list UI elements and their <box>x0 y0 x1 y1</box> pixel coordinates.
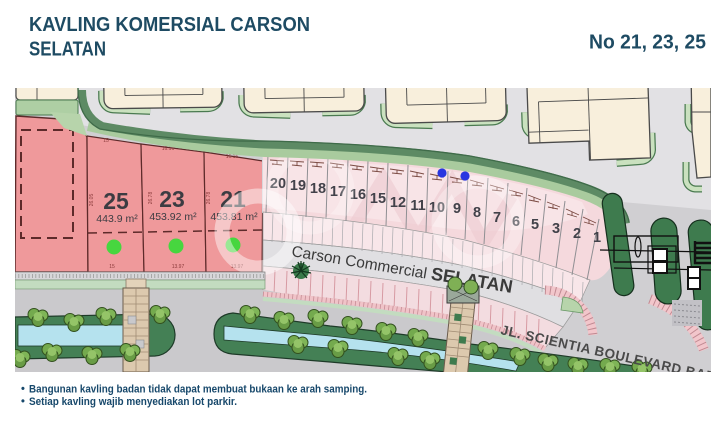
svg-text:453.92 m²: 453.92 m² <box>149 211 197 223</box>
svg-text:Bangunan kavling badan tidak d: Bangunan kavling badan tidak dapat membu… <box>29 384 367 396</box>
svg-text:15: 15 <box>109 264 115 270</box>
svg-text:Setiap kavling wajib menyediak: Setiap kavling wajib menyediakan lot par… <box>29 396 237 408</box>
svg-text:8: 8 <box>473 205 481 221</box>
svg-text:5: 5 <box>531 217 539 233</box>
svg-text:13.97: 13.97 <box>172 264 185 270</box>
svg-text:•: • <box>21 396 25 408</box>
svg-text:SELATAN: SELATAN <box>29 38 106 61</box>
svg-text:1: 1 <box>593 230 601 246</box>
svg-text:25: 25 <box>103 188 129 214</box>
svg-text:3: 3 <box>552 221 560 237</box>
svg-text:443.9 m²: 443.9 m² <box>96 213 138 225</box>
svg-text:KAVLING KOMERSIAL CARSON: KAVLING KOMERSIAL CARSON <box>29 13 310 36</box>
svg-text:15: 15 <box>103 138 109 144</box>
svg-text:26.78: 26.78 <box>206 192 212 205</box>
svg-text:2: 2 <box>573 226 581 242</box>
svg-text:12: 12 <box>390 195 406 211</box>
svg-text:15: 15 <box>370 191 386 207</box>
svg-text:18: 18 <box>310 181 326 197</box>
svg-text:26.78: 26.78 <box>148 192 154 205</box>
svg-text:7: 7 <box>493 210 501 226</box>
svg-text:23: 23 <box>159 186 185 212</box>
svg-text:9: 9 <box>453 201 461 217</box>
svg-text:No 21, 23, 25: No 21, 23, 25 <box>589 31 706 54</box>
svg-text:19: 19 <box>290 178 306 194</box>
svg-text:•: • <box>21 383 25 395</box>
svg-text:11: 11 <box>410 198 425 214</box>
svg-text:26.05: 26.05 <box>89 194 95 207</box>
